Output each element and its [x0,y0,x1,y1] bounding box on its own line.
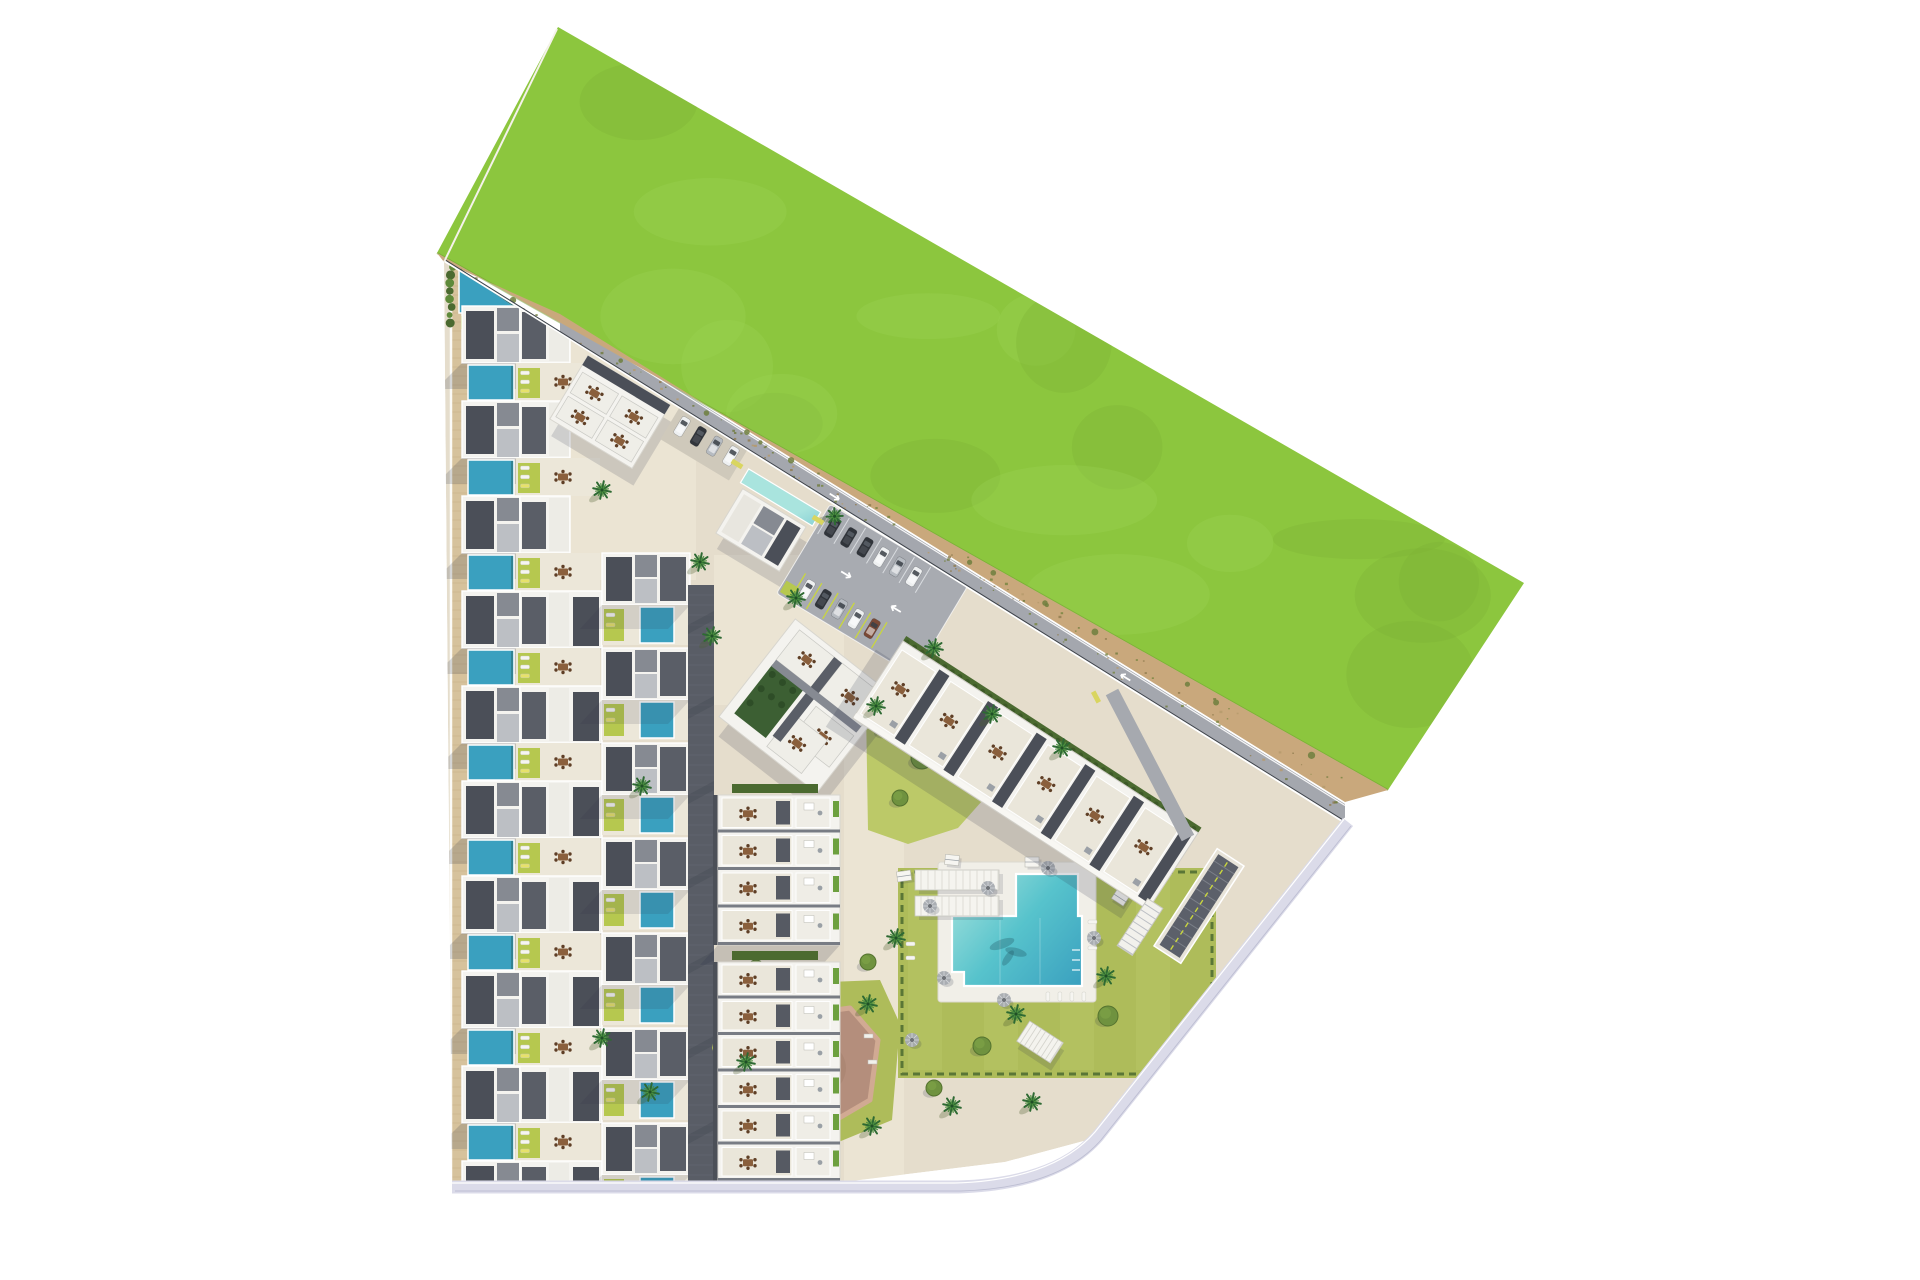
access-lane [688,585,714,1183]
cabana [944,854,962,868]
garden-strip [468,1028,600,1066]
townhouse-building [462,971,602,1028]
apartment-block-c [700,784,840,965]
garden-strip [468,743,600,781]
garden-strip [468,648,600,686]
private-pool [468,935,514,970]
private-pool [468,555,514,590]
private-pool [468,460,514,495]
townhouse-building [462,1066,602,1123]
garden-strip [468,933,600,971]
site-plan-svg [0,0,1920,1280]
garden-strip [468,838,600,876]
private-pool [468,1125,514,1160]
townhouse-building [462,686,602,743]
townhouse-building [462,496,570,553]
garden-strip [468,553,600,591]
garden-strip [468,1123,600,1161]
townhouse-building [462,401,570,458]
townhouse-building [462,781,602,838]
private-pool [468,650,514,685]
shadow [436,1218,602,1244]
private-pool [468,365,514,400]
private-pool [468,745,514,780]
apartment-block-d [700,951,840,1201]
townhouse-building [462,876,602,933]
garden-strip [468,458,600,496]
private-pool [468,840,514,875]
private-pool [468,1030,514,1065]
townhouse-building [462,591,602,648]
masterplan-canvas [0,0,1920,1280]
